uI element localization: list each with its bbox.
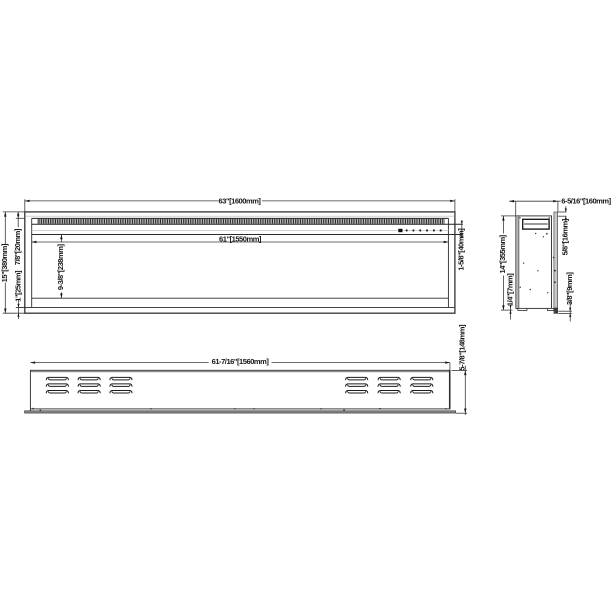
svg-text:3/8"[9mm]: 3/8"[9mm] bbox=[565, 272, 574, 305]
svg-text:1-5/8"[40mm]: 1-5/8"[40mm] bbox=[457, 228, 466, 271]
svg-text:61-7/16"[1560mm]: 61-7/16"[1560mm] bbox=[212, 357, 270, 366]
svg-text:6-5/16"[160mm]: 6-5/16"[160mm] bbox=[561, 197, 611, 206]
svg-text:61"[1550mm]: 61"[1550mm] bbox=[219, 235, 262, 244]
svg-text:5-7/8"[148mm]: 5-7/8"[148mm] bbox=[457, 324, 466, 371]
svg-text:9-3/8"[238mm]: 9-3/8"[238mm] bbox=[56, 244, 65, 291]
svg-text:1"[25mm]: 1"[25mm] bbox=[13, 270, 22, 302]
svg-text:14"[355mm]: 14"[355mm] bbox=[498, 234, 507, 273]
svg-text:63"[1600mm]: 63"[1600mm] bbox=[219, 196, 262, 205]
svg-text:15"[380mm]: 15"[380mm] bbox=[0, 243, 9, 282]
svg-text:5/8"[16mm]: 5/8"[16mm] bbox=[560, 218, 569, 255]
svg-text:1/4"[7mm]: 1/4"[7mm] bbox=[505, 273, 514, 306]
svg-text:7/8"[20mm]: 7/8"[20mm] bbox=[13, 228, 22, 265]
